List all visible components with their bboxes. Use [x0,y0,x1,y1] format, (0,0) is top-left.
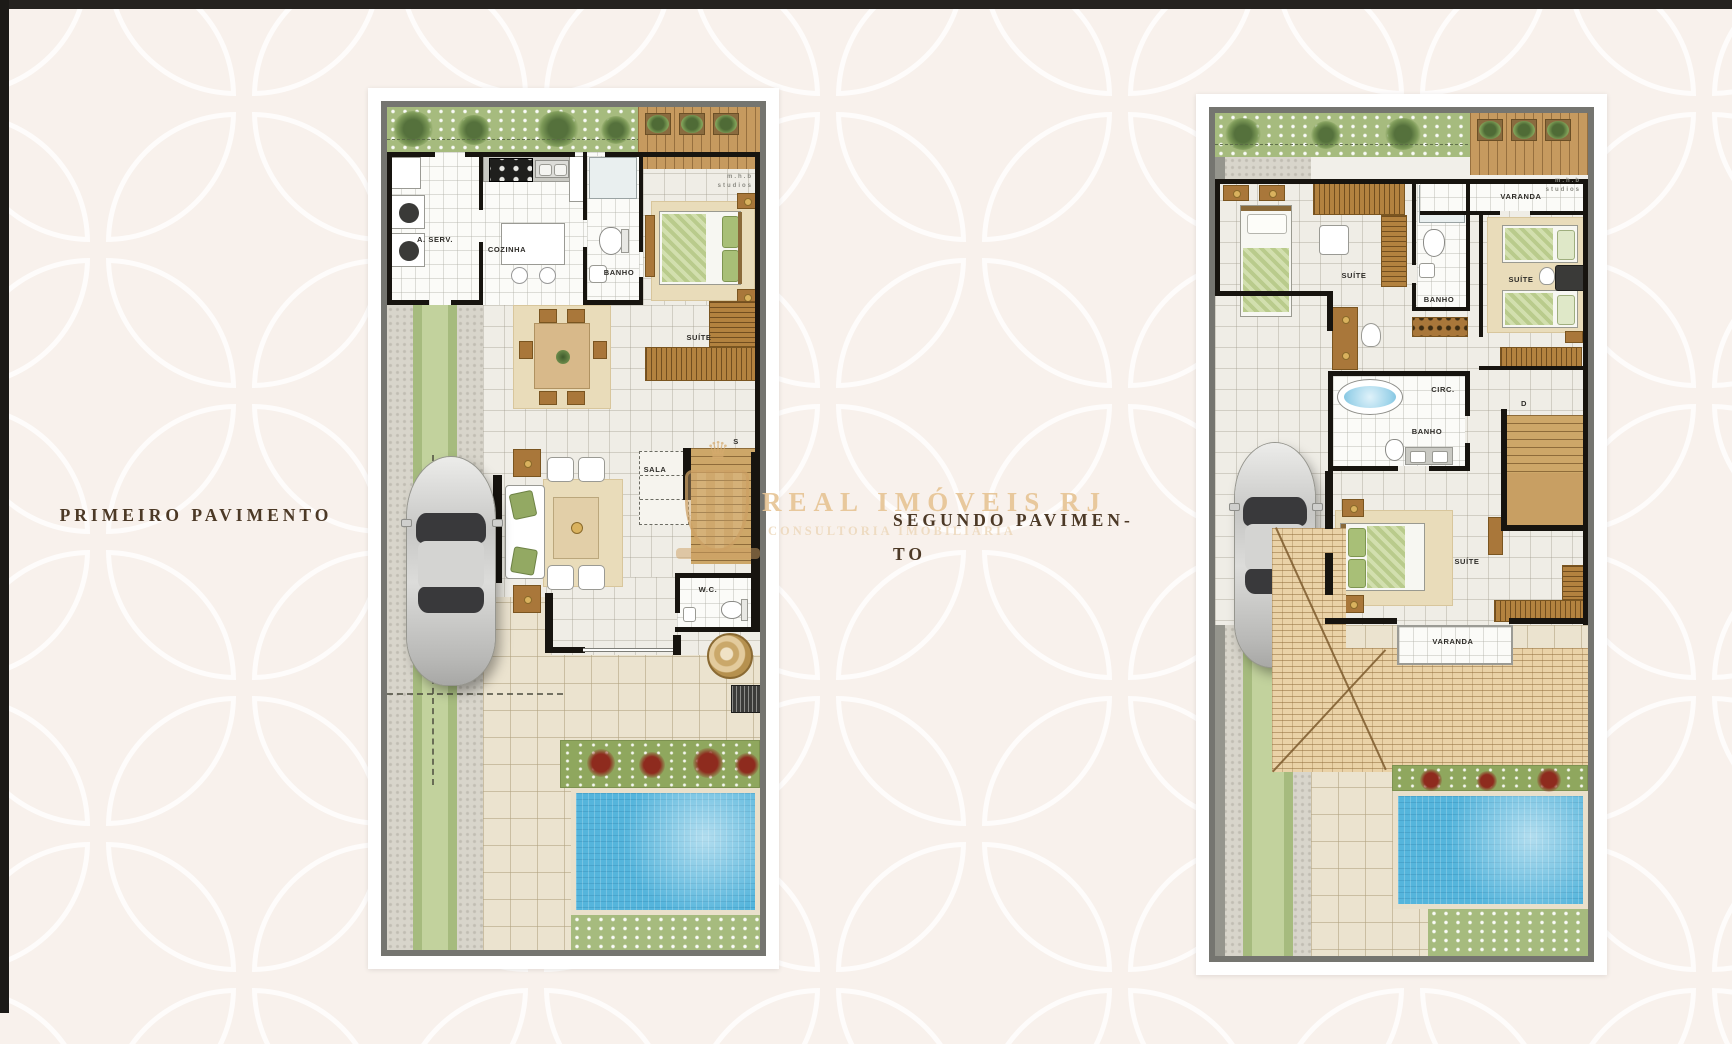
pattern-leaf [252,258,382,388]
wall-segment [1327,291,1333,331]
wall-segment [675,573,760,578]
office-desk [1332,307,1358,370]
dining-chair [519,341,533,359]
shrub [457,115,491,145]
pattern-leaf [252,842,382,972]
red-flowers [1420,769,1442,791]
pattern-leaf [106,550,236,680]
armchair [578,457,605,482]
pattern-leaf [0,842,90,972]
wall-segment [387,152,435,157]
pattern-leaf [0,988,90,1044]
room-label-suite-top-right: SUÍTE [1491,275,1551,284]
wall-segment [1325,618,1397,624]
pillow [1557,295,1575,325]
plan-second-title-line1: SEGUNDO PAVIMEN- [893,503,1153,537]
red-flowers [1477,771,1497,791]
wall-segment [387,152,392,303]
planter-bush [715,115,737,133]
room-label-bath-top: BANHO [1409,295,1469,304]
planter [679,113,705,135]
pattern-leaf [1566,0,1696,96]
wall-segment [1583,179,1588,625]
planter-bush [1479,121,1501,139]
pattern-leaf [1712,696,1732,826]
pattern-leaf [1712,842,1732,972]
sofa-cushion [510,546,538,576]
toilet [599,227,623,255]
shoe-cabinet [1412,317,1468,337]
staircase-landing [1507,473,1584,527]
left-edge-bar [0,0,9,1013]
dryer-door [399,241,419,261]
laundry-sink [391,157,421,189]
headboard [1241,206,1291,211]
wall-segment [1479,366,1588,370]
wall-segment [583,300,643,305]
wall-segment [1412,307,1470,311]
planter-bush [681,115,703,133]
car-mirror [1229,503,1240,511]
red-flowers [639,752,665,778]
wall-segment [1501,409,1507,531]
pattern-leaf [982,112,1112,242]
wc-toilet [721,601,743,619]
pattern-leaf [1420,988,1550,1044]
pattern-leaf [1128,0,1258,96]
pillow [1247,214,1287,234]
wall-segment [1328,466,1398,471]
car-windshield [1243,497,1307,526]
wall-segment [1420,211,1500,215]
pillow [1348,559,1366,588]
pattern-leaf [836,258,966,388]
pattern-leaf [1712,112,1732,242]
table [1319,225,1349,255]
wall-segment [1509,618,1588,624]
wall-segment [755,152,760,452]
pattern-leaf [836,112,966,242]
centerpiece [556,350,570,364]
wall-segment [1429,466,1470,471]
shield-icon [685,470,749,552]
room-label-kitchen: COZINHA [479,245,535,254]
wall-segment [479,152,483,210]
wall-segment [1412,179,1416,265]
planter [1511,119,1537,141]
wall-segment [583,152,587,220]
pillow [1557,230,1575,260]
dining-chair [567,309,585,323]
studio-credit: m.h.b studios [687,173,753,191]
toilet-tank [621,229,629,253]
pillow [1348,528,1366,557]
single-bed [1502,290,1578,328]
planter-bush [1547,121,1569,139]
side-table [513,449,541,477]
pillow [722,250,739,282]
wall-segment [1215,291,1332,296]
studio-credit-line2: studios [687,182,753,191]
car-mirror [401,519,412,527]
car-rear-window [418,587,484,613]
bed-quilt [1243,248,1289,312]
wall-segment [1215,179,1220,295]
red-flowers [735,753,759,777]
wall-segment [583,247,587,303]
planter-bush [1513,121,1535,139]
pattern-leaf [106,988,236,1044]
room-label-suite-top-left: SUÍTE [1324,271,1384,280]
pattern-leaf [0,112,90,242]
bed-quilt [662,214,706,282]
dining-chair [593,341,607,359]
shrub [393,111,433,147]
bed-quilt [1505,293,1553,325]
car [407,457,495,685]
toilet [1423,229,1445,257]
plan-second-title: SEGUNDO PAVIMEN- TO [893,503,1153,571]
pattern-leaf [982,988,1112,1044]
sink-bowl [554,164,567,176]
car-mirror [492,519,503,527]
wall-segment [387,300,429,305]
sink-bowl [539,164,552,176]
wall-segment [639,152,643,252]
wall-segment [1466,179,1470,311]
stool [511,267,528,284]
nightstand [1342,499,1364,517]
pattern-leaf [836,0,966,96]
wall-segment [1328,371,1333,471]
pattern-leaf [252,696,382,826]
wall-segment [545,593,553,653]
pattern-leaf [398,0,528,96]
wall-segment [549,647,585,653]
pattern-leaf [836,842,966,972]
pattern-leaf [544,988,674,1044]
wall-segment [605,152,760,157]
room-label-service: A. SERV. [405,235,465,244]
closet [1381,215,1407,287]
stove [489,158,533,182]
nightstand [737,193,757,209]
jacuzzi-water [1344,386,1396,408]
double-sink-counter [1405,447,1453,465]
pattern-leaf [690,0,820,96]
single-bed [1502,225,1578,263]
washer-door [399,203,419,223]
room-label-bath-middle: BANHO [1397,427,1457,436]
washer [391,195,425,229]
bath-sink [1419,263,1435,278]
pattern-leaf [106,112,236,242]
pillow [722,216,739,248]
dresser [1259,185,1285,201]
pattern-leaf [0,0,90,96]
pattern-leaf [1712,0,1732,96]
kitchen-island [501,223,565,265]
dining-chair [567,391,585,405]
bed-quilt [1505,228,1553,260]
studio-credit-line2: studios [1515,186,1581,195]
coffee-table [553,497,599,559]
wall-segment [675,573,680,613]
pattern-leaf [1566,988,1696,1044]
wall-segment [1530,211,1588,215]
pattern-leaf [1274,988,1404,1044]
armchair [547,457,574,482]
wall-segment [451,300,483,305]
sink-bowl [1432,451,1448,463]
wc-toilet-tank [741,599,748,621]
plan-second-title-line2: TO [893,537,1153,571]
pattern-leaf [1712,258,1732,388]
dresser [1223,185,1249,201]
pattern-leaf [106,696,236,826]
swimming-pool [1393,791,1588,909]
closet [645,347,759,381]
wall-segment [675,627,755,632]
shower [589,157,637,199]
side-table [513,585,541,613]
single-bed [1240,205,1292,317]
pattern-leaf [1128,988,1258,1044]
sofa [505,485,545,579]
sink-bowl [1410,451,1426,463]
plan-first-title: PRIMEIRO PAVIMENTO [46,505,346,526]
pattern-leaf [982,258,1112,388]
top-edge-bar [0,0,1732,9]
office-chair [1361,323,1381,347]
pattern-leaf [544,0,674,96]
pattern-leaf [1712,988,1732,1044]
swimming-pool [571,788,760,915]
cabinet [1565,331,1583,343]
floor-plan-second: VARANDA SUÍTE BANHO SUÍTE CIRC. BANHO D … [1209,107,1594,962]
pattern-leaf [106,258,236,388]
closet [1313,183,1405,215]
staircase-steps [1507,415,1584,473]
dining-chair [539,391,557,405]
outdoor-shower-spiral [707,633,753,679]
red-flowers [1537,768,1561,792]
wall-segment [1465,443,1470,471]
wall-segment [1325,471,1333,529]
bed [1340,523,1425,591]
planter [645,113,671,135]
shield-banner [676,548,760,559]
shrub [537,111,579,147]
planter [1477,119,1503,141]
wall-segment [1501,525,1588,531]
bed-quilt [1367,526,1405,588]
headboard [738,212,742,284]
stool [539,267,556,284]
pattern-leaf [252,988,382,1044]
flower-lawn [571,915,760,950]
pattern-leaf [982,696,1112,826]
barbecue-grill [731,685,762,713]
pattern-leaf [1712,404,1732,534]
pattern-leaf [252,0,382,96]
room-label-suite: SUÍTE [669,333,729,342]
wc-sink [683,607,696,622]
stairs-down-marker: D [1517,399,1531,408]
studio-credit-line1: m.h.b [1515,177,1581,186]
watermark-shield-logo: ♛ [670,448,766,568]
car-windshield [416,513,486,543]
room-label-varanda-bottom: VARANDA [1423,637,1483,646]
flower-lawn [1428,909,1588,956]
wall-segment [673,635,681,655]
dashed-line [387,693,563,695]
sofa-cushion [509,490,538,520]
armchair [547,565,574,590]
car-roof [418,541,484,589]
pattern-leaf [1274,0,1404,96]
planter [713,113,739,135]
room-label-circulation: CIRC. [1413,385,1473,394]
wall-segment [1328,371,1470,376]
planter-bush [647,115,669,133]
pattern-leaf [982,842,1112,972]
pattern-leaf [252,550,382,680]
crown-icon: ♛ [670,436,766,467]
pattern-leaf [106,0,236,96]
kitchen-sink [535,160,569,178]
pattern-leaf [0,258,90,388]
jacuzzi-tub [1337,379,1403,415]
shrub [1225,118,1261,150]
studio-credit-line1: m.h.b [687,173,753,182]
planter [1545,119,1571,141]
roof-main [1272,648,1588,772]
sliding-glass-door [583,648,675,652]
red-flowers [693,748,723,778]
room-label-suite-bottom: SUÍTE [1437,557,1497,566]
dining-table [534,323,590,389]
pattern-leaf [106,842,236,972]
pattern-leaf [836,696,966,826]
toilet [1385,439,1404,461]
armchair [578,565,605,590]
dining-chair [539,309,557,323]
bed [659,211,741,285]
room-label-wc: W.C. [683,585,733,594]
pattern-leaf [1712,550,1732,680]
wall-segment [1325,553,1333,595]
pattern-leaf [836,988,966,1044]
pattern-leaf [1420,0,1550,96]
studio-credit: m.h.b studios [1515,177,1581,195]
pattern-leaf [252,112,382,242]
room-label-bath: BANHO [591,268,647,277]
pattern-leaf [690,988,820,1044]
pattern-leaf [0,696,90,826]
pattern-leaf [0,550,90,680]
car-mirror [1312,503,1323,511]
pattern-leaf [982,0,1112,96]
pattern-leaf [398,988,528,1044]
wall-segment [1479,211,1483,337]
red-flowers [587,749,615,777]
shrub [1385,118,1421,150]
